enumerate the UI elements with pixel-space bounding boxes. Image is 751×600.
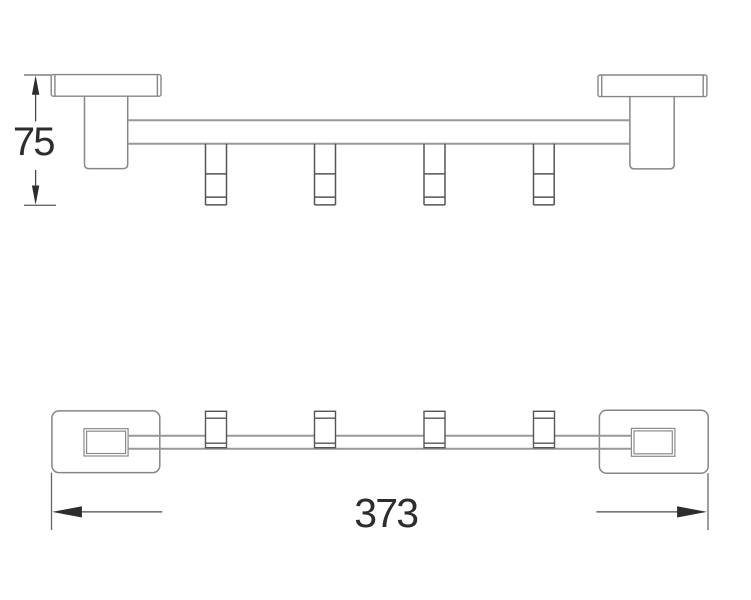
svg-text:75: 75 — [13, 120, 54, 164]
svg-text:373: 373 — [354, 490, 417, 536]
